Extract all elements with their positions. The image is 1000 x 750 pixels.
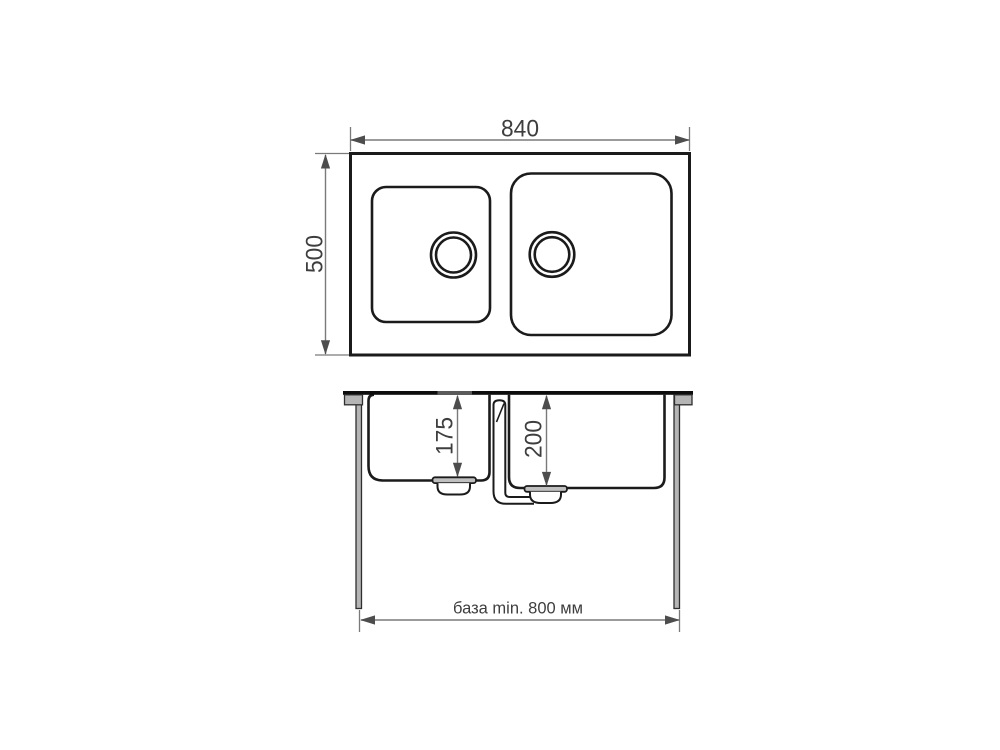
dimension-depth: 500 [302,154,350,356]
dimension-right-bowl-depth: 200 [521,395,552,487]
left-leg-bracket [345,395,363,405]
right-leg-bracket [675,395,693,405]
arrow-down-icon [321,340,330,355]
right-drain-flange [525,486,568,492]
sink-outline [351,154,690,356]
dimension-base: база min. 800 мм [360,600,681,633]
width-label: 840 [501,116,539,143]
arrow-right-icon [675,135,690,144]
arrow-up-icon [542,395,551,409]
top-view [351,154,690,356]
left-drain-cup [438,483,471,494]
countertop-drain-hole [438,391,473,395]
arrow-up-icon [453,395,462,409]
left-bowl-depth-label: 175 [432,417,459,455]
drain-pipe-overflow-wedge [497,404,505,423]
dimension-width: 840 [350,116,690,152]
arrow-left-icon [360,615,375,624]
arrow-down-icon [453,463,462,477]
section-view [343,391,693,609]
sink-technical-drawing: 840 500 175 [0,0,1000,750]
left-leg [356,395,362,609]
drawing-canvas: 840 500 175 [0,0,1000,750]
arrow-left-icon [350,135,365,144]
right-leg [674,395,680,609]
arrow-right-icon [665,615,680,624]
dimension-left-bowl-depth: 175 [432,395,463,477]
base-min-label: база min. 800 мм [453,600,583,618]
left-bowl-section [369,395,490,481]
arrow-up-icon [321,154,330,169]
right-drain-cup [530,492,561,503]
left-drain-flange [433,477,477,483]
depth-label: 500 [302,235,329,273]
right-bowl-depth-label: 200 [521,420,548,458]
arrow-down-icon [542,472,551,486]
countertop [343,391,693,395]
